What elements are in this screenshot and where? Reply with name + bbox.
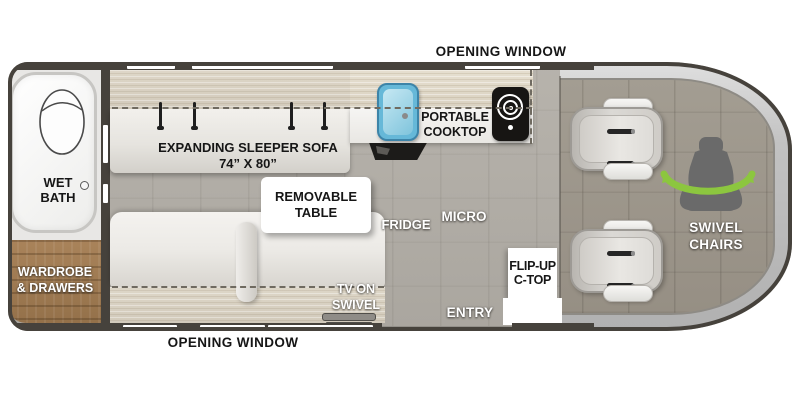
window-top-opening [465,64,540,69]
label-sleeper-sofa: EXPANDING SLEEPER SOFA 74” X 80” [138,140,358,172]
label-line: PORTABLE [409,110,501,125]
label-tv-on-swivel: TV ON SWIVEL [304,282,408,313]
window-bottom-opening [200,325,265,330]
rv-floorplan-canvas: OPENING WINDOW OPENING WINDOW WET BATH W [0,0,800,400]
flip-up-countertop: FLIP-UP C-TOP [508,248,557,298]
burner-knob [508,125,513,130]
tv-icon [322,313,376,321]
label-line: TV ON [304,282,408,298]
headrest [603,285,653,302]
entry-threshold [382,326,512,329]
window-bottom-1 [123,325,177,330]
overhead-cabinet-dashline [530,70,532,144]
removable-table-callout: REMOVABLE TABLE [261,177,371,233]
label-wardrobe: WARDROBE & DRAWERS [9,265,101,296]
label-line: & DRAWERS [9,281,101,297]
window-top-1 [127,64,175,69]
overhead-cabinet-dashline [112,107,532,109]
pocket-door-segment [103,125,108,163]
label-line: WARDROBE [9,265,101,281]
label-line: TABLE [261,205,371,221]
seat-base [570,107,663,171]
swivel-chair-icon [656,124,760,222]
cab-floor-edge [559,76,561,309]
label-line: BATH [20,191,96,206]
label-line: WET [20,176,96,191]
sofa-backrest-top [110,70,350,109]
pocket-door-segment [103,184,108,203]
seatbelt-bar [607,129,634,135]
label-line: EXPANDING SLEEPER SOFA [138,140,358,156]
label-fridge: FRIDGE [374,217,438,232]
label-line: C-TOP [508,273,557,288]
label-portable-cooktop: PORTABLE COOKTOP [409,110,501,140]
label-swivel-chairs: SWIVEL CHAIRS [648,220,784,253]
shower-pan [10,72,97,233]
seat-cushion [579,237,654,285]
label-micro: MICRO [434,209,494,224]
label-line: SWIVEL [304,298,408,314]
label-wet-bath: WET BATH [20,176,96,205]
headrest [603,163,653,180]
label-line: 74” X 80” [138,156,358,172]
label-entry: ENTRY [428,305,512,320]
label-line: COOKTOP [409,125,501,140]
label-line: SWIVEL [648,220,784,237]
label-line: REMOVABLE [261,189,371,205]
fridge-vent-icon [368,143,428,160]
seatbelt-bar [607,251,634,257]
table-pedestal [236,222,257,302]
label-line: CHAIRS [648,237,784,254]
label-opening-window-top: OPENING WINDOW [410,44,592,59]
wall-bottom [512,323,594,331]
seat-cushion [579,115,654,163]
label-line: FLIP-UP [508,259,557,274]
toilet-icon [37,83,89,159]
seat-icon-driver [570,98,663,180]
faucet-icon [402,113,408,119]
flip-up-countertop-base [503,298,562,325]
window-bottom-2 [268,325,373,330]
label-opening-window-bottom: OPENING WINDOW [142,335,324,350]
van-body: WET BATH WARDROBE & DRAWERS EXPANDING SL… [8,62,792,331]
window-top-2 [192,64,333,69]
